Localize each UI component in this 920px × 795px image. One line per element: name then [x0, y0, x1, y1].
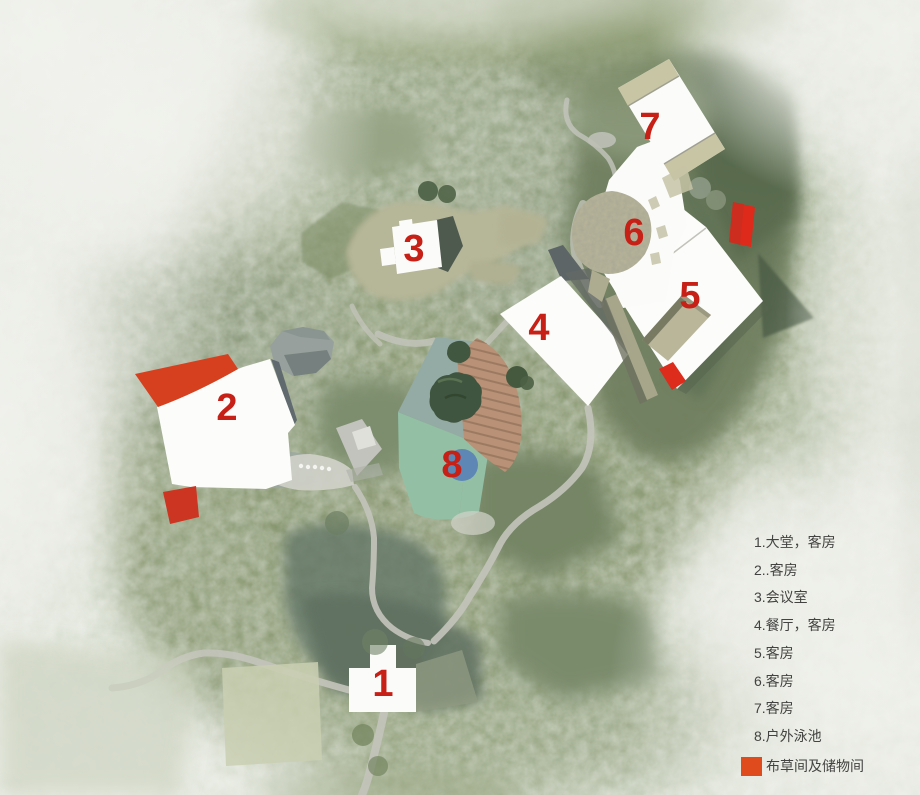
svg-text:2: 2: [216, 387, 237, 429]
svg-text:1: 1: [372, 663, 393, 705]
svg-text:1.大堂，客房: 1.大堂，客房: [754, 534, 836, 550]
svg-text:3: 3: [403, 228, 424, 270]
svg-text:8.户外泳池: 8.户外泳池: [754, 728, 822, 744]
svg-text:8: 8: [441, 444, 462, 486]
svg-text:4: 4: [528, 307, 549, 349]
svg-text:7: 7: [639, 106, 660, 148]
svg-text:2..客房: 2..客房: [754, 562, 798, 578]
svg-text:6: 6: [623, 212, 644, 254]
svg-text:5: 5: [679, 275, 700, 317]
svg-text:7.客房: 7.客房: [754, 700, 794, 716]
svg-text:5.客房: 5.客房: [754, 645, 794, 661]
svg-text:6.客房: 6.客房: [754, 673, 794, 689]
svg-text:3.会议室: 3.会议室: [754, 589, 808, 605]
svg-text:布草间及储物间: 布草间及储物间: [766, 758, 864, 774]
svg-text:4.餐厅，客房: 4.餐厅，客房: [754, 617, 836, 633]
